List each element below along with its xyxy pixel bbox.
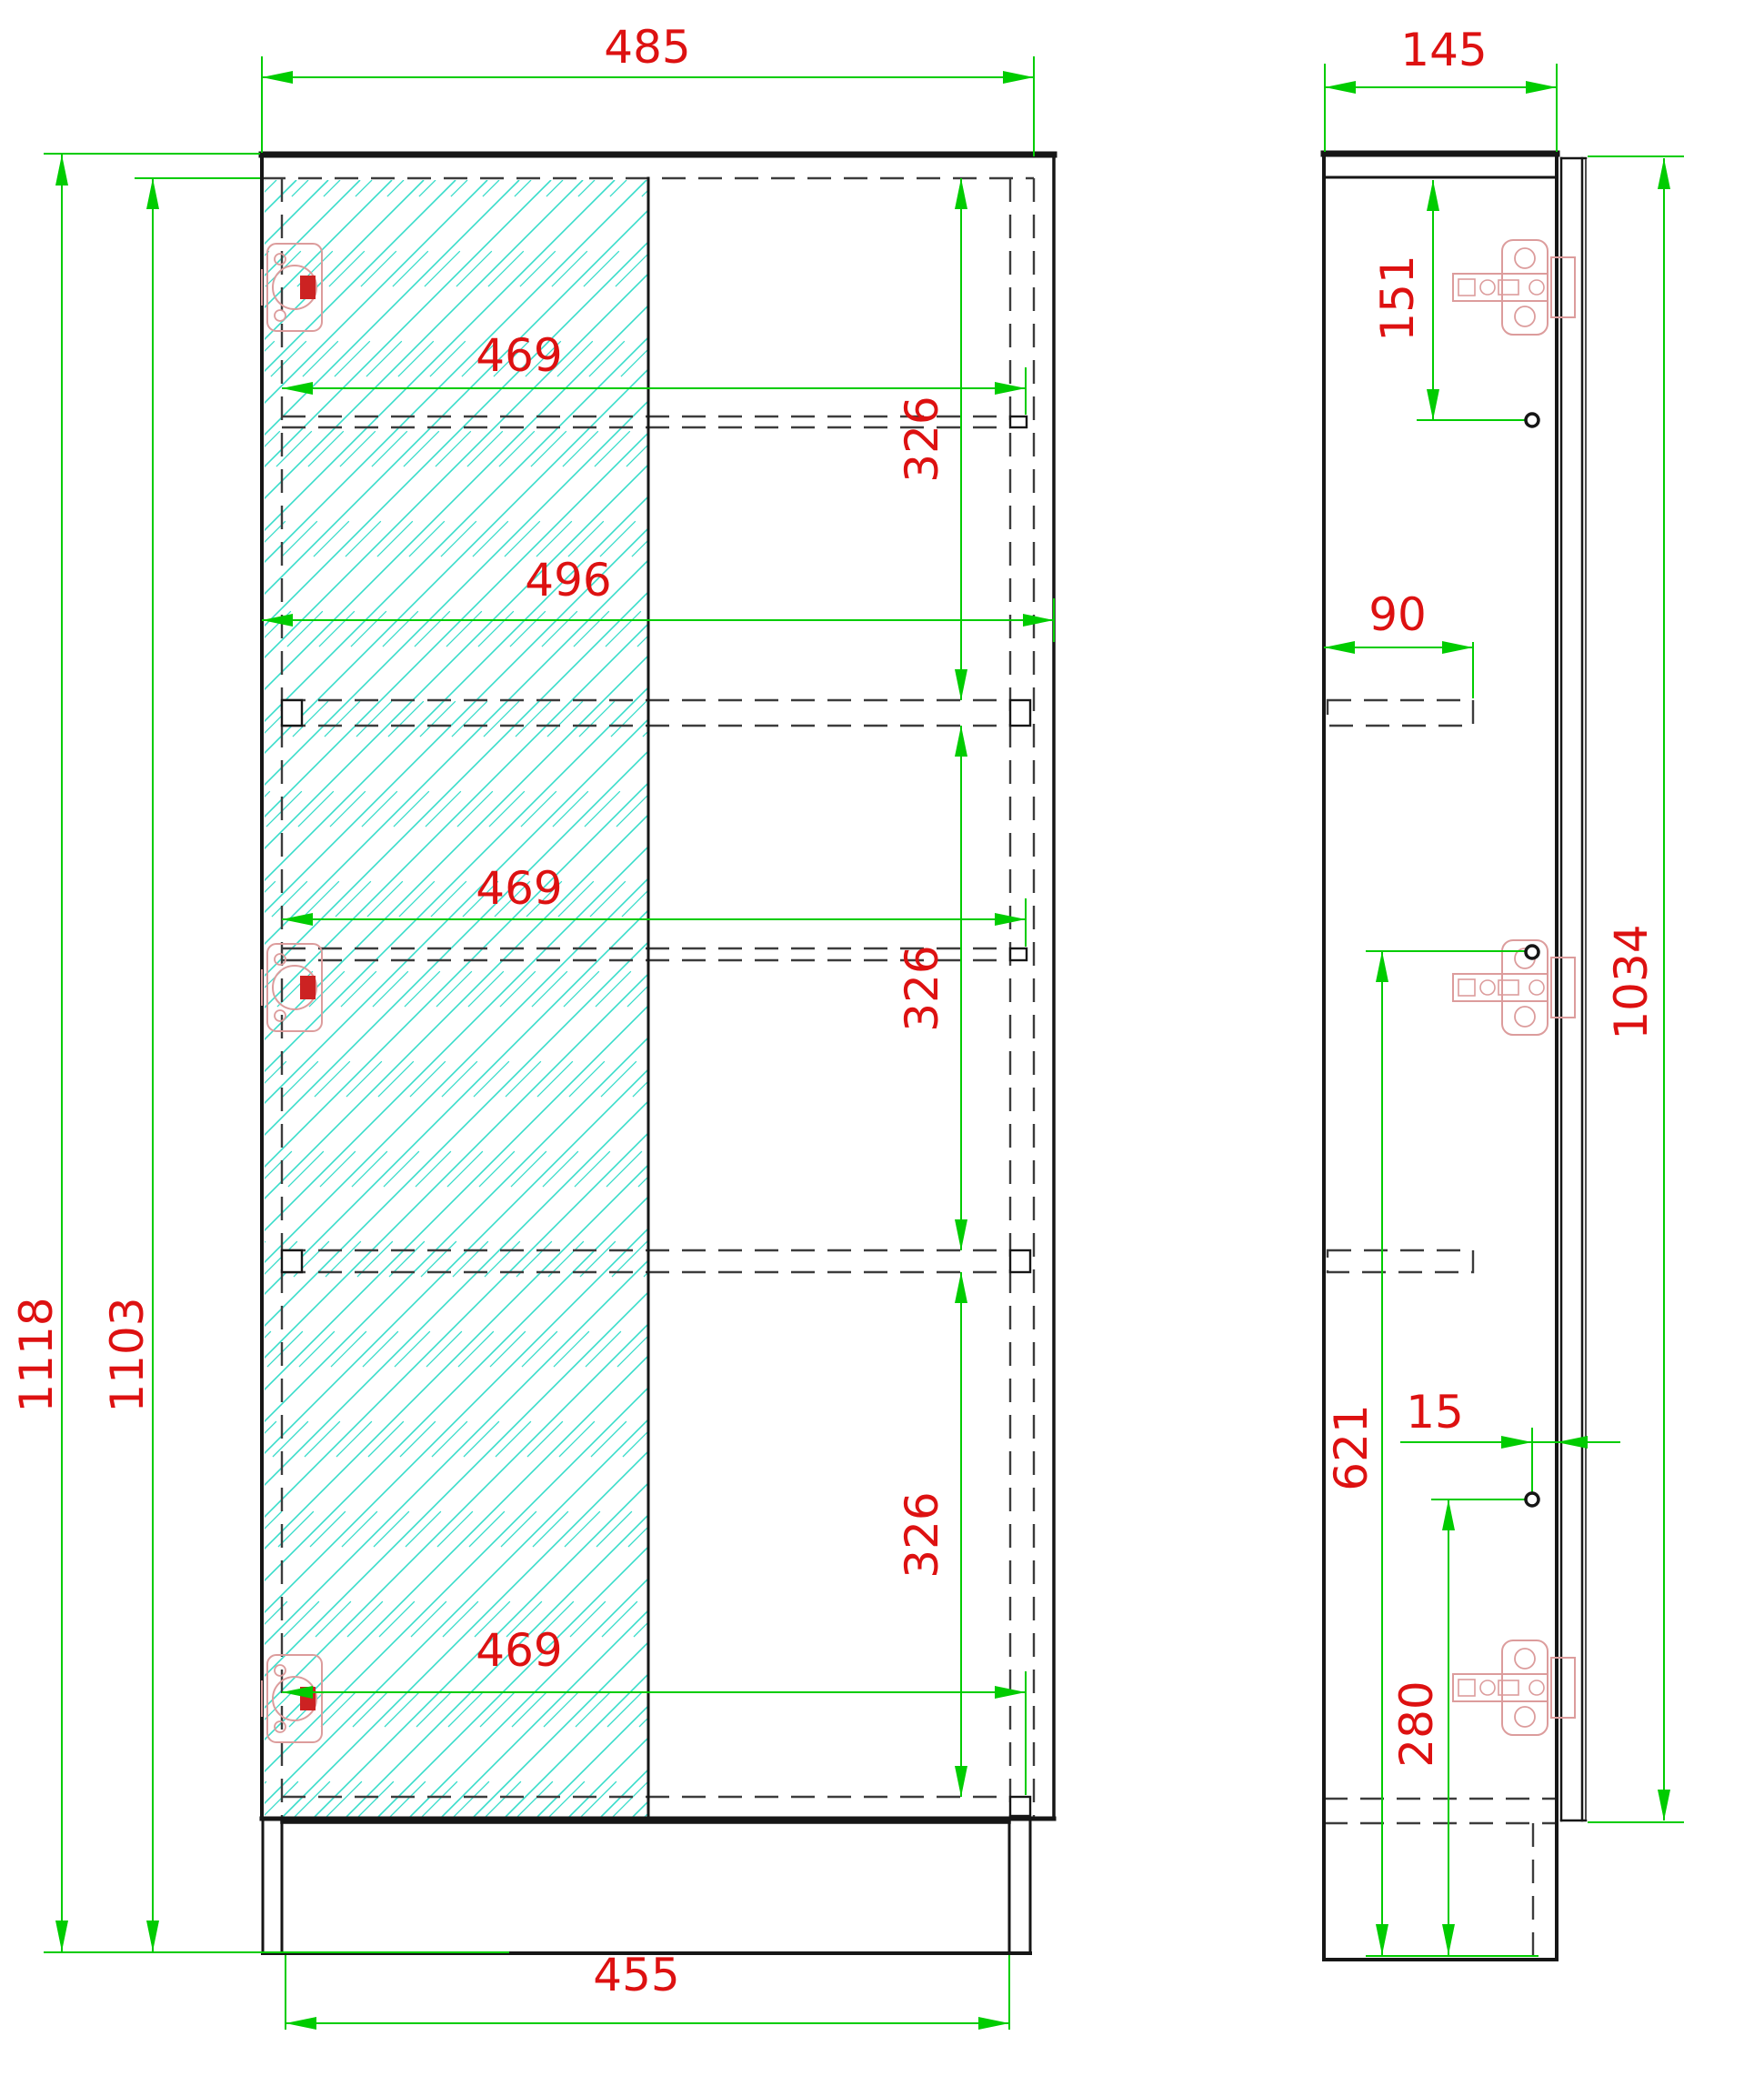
hatch-line (0, 180, 1124, 1817)
hinge-front-icon (262, 244, 322, 331)
hatch-line-broken (0, 180, 404, 1817)
hatch-line (0, 180, 519, 1817)
hatch-line (0, 180, 1156, 1817)
hatch-line-broken (0, 180, 786, 1817)
hatch-line-broken (0, 180, 977, 1817)
dimension-arrowhead (978, 2017, 1009, 2030)
hatch-line-broken (0, 180, 1518, 1817)
dimension-arrowhead (1442, 1499, 1455, 1530)
dimension-arrowhead (1003, 71, 1034, 84)
hatch-line (0, 180, 424, 1817)
dim-label-door-height: 1034 (1605, 924, 1658, 1039)
hatch-line-broken (0, 180, 276, 1817)
shelf-end-cap (1010, 1250, 1030, 1272)
hatch-line (601, 180, 1764, 1817)
hatch-line-broken (0, 180, 1422, 1817)
dim-label-depth-total: 145 (1400, 24, 1487, 76)
hatch-line-broken (0, 180, 467, 1817)
hatch-line (0, 180, 456, 1817)
hatch-line-broken (0, 180, 754, 1817)
hatch-line (0, 180, 265, 1817)
dim-label-width-total: 485 (604, 21, 690, 74)
dim-label-shelf-gap-2: 326 (896, 945, 948, 1031)
dim-label-height-total: 1118 (10, 1297, 63, 1412)
hatch-line-broken (645, 180, 1764, 1817)
hatch-line-broken (517, 180, 1764, 1817)
dimension-arrowhead (55, 155, 68, 186)
shelf-end-cap (1010, 416, 1027, 427)
dimension-arrowhead (955, 726, 967, 757)
hatch-line (474, 180, 1764, 1817)
hatch-line (0, 180, 328, 1817)
hatch-line (0, 180, 997, 1817)
shelf-end-cap (1010, 700, 1030, 726)
hatch-line-broken (0, 180, 881, 1817)
hatch-line-broken (0, 180, 1008, 1817)
hatch-line-broken (167, 180, 1764, 1817)
dim-label-shelf-depth: 90 (1368, 588, 1427, 641)
hatch-line (0, 180, 1028, 1817)
hatch-line-broken (0, 180, 531, 1817)
dimension-arrowhead (1376, 1924, 1388, 1955)
dimension-arrowhead (1325, 81, 1356, 94)
hatch-line (0, 180, 1506, 1817)
hatch-line (633, 180, 1764, 1817)
hatch-line (0, 180, 392, 1817)
hatch-line (315, 180, 1764, 1817)
dimension-arrowhead (1023, 614, 1054, 627)
dimension-arrowhead (282, 382, 313, 395)
dim-label-shelf-gap-3: 326 (896, 1491, 948, 1578)
hatch-line (0, 180, 1538, 1817)
hatch-line-broken (135, 180, 1764, 1817)
hatch-line (0, 180, 646, 1817)
hinge-front-icon (262, 1655, 322, 1742)
hatch-line (0, 180, 1251, 1817)
dimension-arrowhead (1427, 180, 1439, 211)
hatch-line (0, 180, 869, 1817)
hatch-line-broken (0, 180, 1613, 1817)
shelf-end-cap (1010, 948, 1027, 960)
hatch-line (0, 180, 1474, 1817)
hatch-line (0, 180, 965, 1817)
dim-label-height-carcass: 1103 (101, 1297, 154, 1412)
hatch-line-broken (581, 180, 1764, 1817)
dimension-arrowhead (955, 1272, 967, 1303)
hatch-line-broken (0, 180, 913, 1817)
hatch-line (0, 180, 1410, 1817)
hatch-line (0, 180, 1283, 1817)
hatch-line (0, 180, 1315, 1817)
hatch-line (0, 180, 1633, 1817)
hatch-line-broken (486, 180, 1764, 1817)
hatch-line (0, 180, 678, 1817)
hatch-line (0, 180, 901, 1817)
dim-label-shelf-width-top: 469 (476, 329, 562, 382)
shelf-pin-hole (1526, 414, 1538, 426)
hatch-line-broken (0, 180, 1390, 1817)
hatch-line (0, 180, 933, 1817)
hatch-line (569, 180, 1764, 1817)
hatch-line-broken (0, 180, 595, 1817)
hatch-line-broken (0, 180, 499, 1817)
dimension-arrowhead (146, 178, 159, 209)
dimension-arrowhead (282, 913, 313, 926)
dim-label-shelf-width-mid: 469 (476, 862, 562, 915)
hatch-line-broken (358, 180, 1764, 1817)
dimension-arrowhead (1526, 81, 1557, 94)
shelf-end-cap (282, 1250, 302, 1272)
hatch-line-broken (454, 180, 1764, 1817)
cad-drawing-page: 4851454694964694694559015111811033263263… (0, 0, 1764, 2076)
hatch-line-broken (0, 180, 1549, 1817)
dim-label-shelf-gap-1: 326 (896, 396, 948, 482)
dimension-arrowhead (1376, 951, 1388, 982)
shelf-pin-hole (1526, 1493, 1538, 1506)
shelf-end-cap (1010, 1797, 1030, 1816)
hatch-line (0, 180, 806, 1817)
hatch-line (0, 180, 583, 1817)
dimension-arrowhead (146, 1921, 159, 1951)
hatch-line-broken (0, 180, 1040, 1817)
dimension-arrowhead (1658, 1790, 1670, 1820)
hatch-line (0, 180, 1347, 1817)
dimension-arrowhead (955, 669, 967, 700)
hidden-shelf-box (1328, 700, 1473, 726)
shelf-end-caps (282, 416, 1030, 1816)
dim-label-pin-front-offset: 15 (1406, 1386, 1464, 1439)
shelf-pin-hole (1526, 946, 1538, 958)
hatch-line (0, 180, 296, 1817)
technical-drawing-svg: 4851454694964694694559015111811033263263… (0, 0, 1764, 2076)
hinge-front-icon (262, 944, 322, 1031)
hatch-line-broken (0, 180, 436, 1817)
hatch-line-broken (613, 180, 1764, 1817)
hatch-line-broken (0, 180, 817, 1817)
hatch-line (0, 180, 1219, 1817)
hatch-line (155, 180, 1764, 1817)
hatch-line-broken (0, 180, 849, 1817)
dimension-arrowhead (1324, 641, 1355, 654)
hatch-line-broken (0, 180, 1358, 1817)
hatch-line (0, 180, 1601, 1817)
hatch-line (0, 180, 487, 1817)
dimension-arrowhead (955, 1219, 967, 1250)
dim-label-pin-mid-height: 621 (1325, 1404, 1378, 1490)
hatch-line-broken (0, 180, 1327, 1817)
hatch-line (0, 180, 1378, 1817)
dimension-labels: 4851454694964694694559015111811033263263… (10, 21, 1658, 2001)
dimension-arrowhead (55, 1921, 68, 1951)
hatch-line-broken (0, 180, 1168, 1817)
hatch-line-broken (0, 180, 1486, 1817)
hatch-line-broken (0, 180, 690, 1817)
hatch-line-broken (8, 180, 1645, 1817)
hatch-line (537, 180, 1764, 1817)
dim-label-hinge-top-offset: 151 (1371, 255, 1424, 341)
dim-label-shelf-width-bottom: 469 (476, 1624, 562, 1677)
dimension-arrowhead (1501, 1436, 1532, 1449)
dimension-arrowhead (1442, 641, 1473, 654)
dimension-arrowhead (1442, 1924, 1455, 1955)
dim-label-plinth-width: 455 (593, 1949, 679, 2001)
hatch-line (0, 180, 742, 1817)
hidden-shelf-box (1328, 1250, 1473, 1272)
dim-label-pin-bottom-height: 280 (1390, 1680, 1443, 1767)
glass-hatch-pattern (0, 180, 1764, 1817)
hatch-line-broken (0, 180, 722, 1817)
dimension-arrowhead (955, 1766, 967, 1797)
dimension-arrowhead (282, 1686, 313, 1699)
hatch-line-broken (0, 180, 945, 1817)
hatch-line-broken (0, 180, 340, 1817)
hatch-line-broken (0, 180, 1581, 1817)
dimension-arrowhead (286, 2017, 316, 2030)
dim-label-door-span-width: 496 (525, 554, 611, 607)
hatch-line-broken (0, 180, 1231, 1817)
hatch-line (0, 180, 774, 1817)
hatch-line-broken (0, 180, 372, 1817)
dimension-arrowhead (1427, 389, 1439, 420)
hatch-line-broken (0, 180, 1263, 1817)
dimension-arrowhead (262, 71, 293, 84)
dimension-arrowhead (1658, 158, 1670, 189)
hatch-line (0, 180, 1442, 1817)
dimension-arrowhead (955, 178, 967, 209)
shelf-end-cap (282, 700, 302, 726)
hatch-line-broken (0, 180, 1136, 1817)
hatch-line (0, 180, 837, 1817)
hatch-line (0, 180, 1569, 1817)
hatch-line-broken (295, 180, 1764, 1817)
dimension-arrowhead (995, 382, 1026, 395)
hatch-line-broken (0, 180, 1454, 1817)
hatch-line (442, 180, 1764, 1817)
